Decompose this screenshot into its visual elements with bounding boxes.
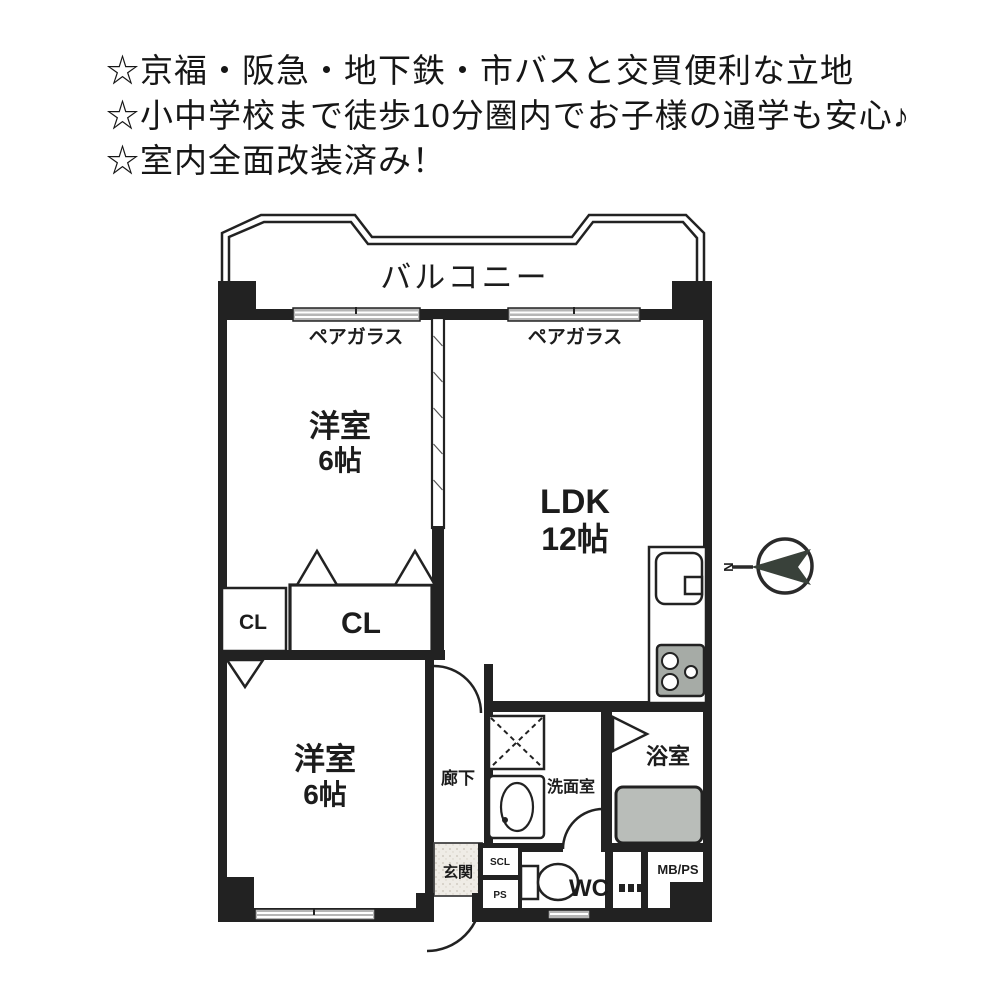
vent-dot-2: [628, 884, 634, 892]
bathroom-door-triangle: [613, 717, 647, 751]
stove-burner-1: [662, 653, 678, 669]
wash-basin-drain: [502, 817, 508, 823]
pair-glass-left-label: ペアガラス: [309, 326, 404, 348]
shoe-closet-stack: SCL PS: [478, 843, 522, 913]
entrance-opening: [429, 902, 472, 924]
window-right: [508, 307, 640, 321]
room-bedroom-bottom: 洋室 6帖: [255, 652, 434, 920]
wall-vent-divider: [641, 852, 648, 908]
balcony: バルコニー: [222, 215, 704, 295]
corridor: 廊下: [434, 664, 493, 852]
toilet-tank: [521, 866, 538, 899]
room-ldk: LDK 12帖: [540, 483, 610, 557]
shoe-closet-label: SCL: [490, 857, 510, 868]
closet-right-label: CL: [341, 607, 381, 640]
toilet-label: WC: [569, 875, 609, 902]
balcony-label: バルコニー: [380, 260, 549, 295]
corridor-door-arc: [434, 666, 481, 713]
listing-page: ☆京福・阪急・地下鉄・市バスと交買便利な立地 ☆小中学校まで徒歩10分圏内でお子…: [0, 0, 1000, 1000]
vent-dot-3: [637, 884, 643, 892]
ldk-label: LDK: [540, 483, 610, 521]
bathroom: 浴室: [613, 717, 702, 843]
bedroom-bottom-label: 洋室: [294, 742, 356, 777]
window-wc: [548, 910, 590, 919]
meter-box-label: MB/PS: [657, 862, 699, 877]
pipe-space-label: PS: [493, 890, 507, 901]
stove-burner-3: [685, 666, 697, 678]
partition-solid: [432, 526, 444, 660]
corridor-label: 廊下: [441, 768, 475, 788]
north-compass: N: [721, 539, 812, 593]
meter-box-area: MB/PS: [619, 852, 712, 910]
washroom: 洗面室: [489, 716, 595, 838]
bathroom-label: 浴室: [646, 744, 690, 769]
wall-bedroom-bottom-right: [425, 652, 434, 910]
bedroom-top-label: 洋室: [309, 409, 371, 444]
meter-box-block: [670, 882, 712, 910]
closet-row: CL CL: [218, 551, 445, 687]
washing-machine-pan: [489, 716, 544, 769]
entrance-label: 玄関: [443, 863, 473, 881]
partition-channel: [432, 318, 444, 528]
bedroom-top-size: 6帖: [318, 445, 362, 476]
bathtub: [616, 787, 702, 843]
wall-closet-bottom: [218, 650, 445, 660]
wash-basin-bowl: [501, 783, 533, 831]
closet-left-label: CL: [239, 611, 267, 634]
closet-door-triangle-2: [395, 551, 435, 585]
stove-burner-2: [662, 674, 678, 690]
vent-dot-1: [619, 884, 625, 892]
entrance-stub-left: [416, 893, 434, 922]
closet-door-triangle-1: [297, 551, 337, 585]
pair-glass-right-label: ペアガラス: [528, 326, 623, 348]
kitchen-sink-drainer: [685, 577, 702, 594]
kitchen: [649, 547, 706, 703]
ldk-size: 12帖: [541, 521, 609, 557]
window-bottom: [255, 908, 375, 920]
floor-plan: バルコニー ペアガラス ペアガラス: [0, 0, 1000, 1000]
bedroom-bottom-size: 6帖: [303, 779, 347, 810]
partition-bedroom-ldk: [432, 318, 444, 660]
wall-bath-left: [601, 712, 612, 852]
window-left: [293, 307, 420, 321]
washroom-label: 洗面室: [547, 777, 595, 796]
compass-north-label: N: [721, 562, 736, 571]
washroom-door-arc: [563, 809, 603, 849]
closet-door-triangle-down: [227, 660, 263, 687]
room-bedroom-top: 洋室 6帖: [309, 409, 371, 476]
